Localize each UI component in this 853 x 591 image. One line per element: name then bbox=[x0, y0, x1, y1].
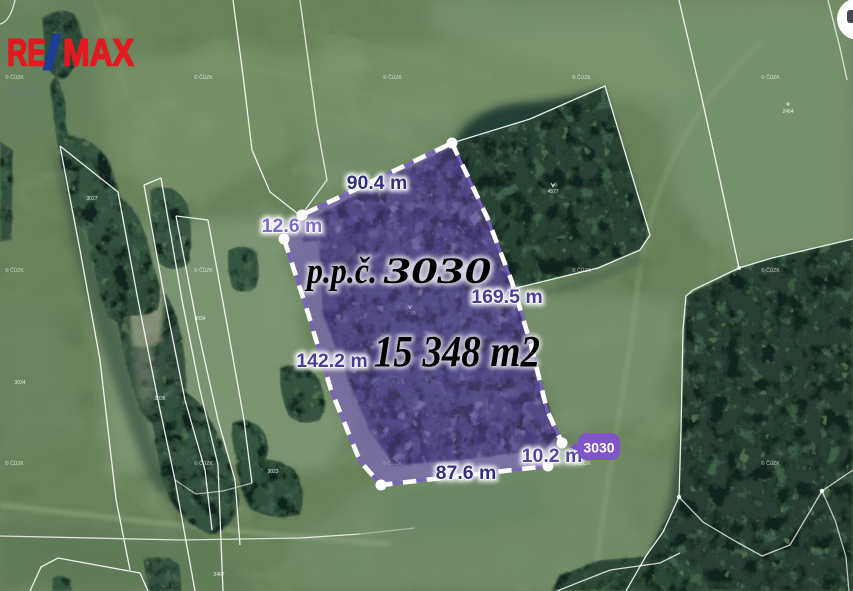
svg-text:p.p.č.: p.p.č. bbox=[304, 251, 377, 292]
svg-text:12.6 m: 12.6 m bbox=[262, 215, 323, 237]
svg-text:MAX: MAX bbox=[63, 32, 134, 74]
svg-text:ČÚZK: ČÚZK bbox=[9, 86, 39, 98]
svg-text:142.2 m: 142.2 m bbox=[296, 350, 368, 372]
svg-text:15 348 m2: 15 348 m2 bbox=[374, 327, 540, 376]
svg-text:RE: RE bbox=[7, 33, 46, 75]
svg-text:90.4 m: 90.4 m bbox=[347, 172, 408, 194]
svg-text:3030: 3030 bbox=[583, 440, 614, 456]
svg-text:87.6 m: 87.6 m bbox=[436, 462, 497, 484]
svg-text:3030: 3030 bbox=[383, 251, 491, 292]
